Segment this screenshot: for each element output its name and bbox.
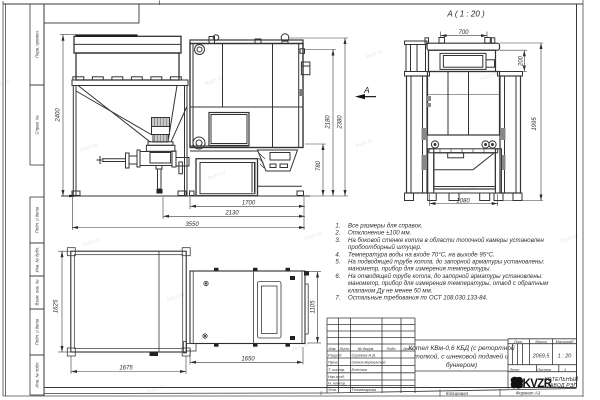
svg-text:1 : 20: 1 : 20	[558, 354, 573, 360]
svg-text:Формат А3: Формат А3	[516, 390, 541, 395]
svg-text:780: 780	[316, 160, 322, 171]
svg-text:Подп. и дата: Подп. и дата	[35, 318, 40, 345]
svg-text:Справ. №: Справ. №	[35, 115, 40, 134]
svg-text:1675: 1675	[119, 366, 133, 372]
svg-text:200: 200	[519, 55, 525, 67]
svg-text:Т. контр.: Т. контр.	[328, 367, 345, 372]
svg-text:Все размеры для справок.: Все размеры для справок.	[348, 223, 423, 230]
svg-text:На отводящей трубе котла, до з: На отводящей трубе котла, до запорной ар…	[348, 273, 543, 280]
svg-text:1: 1	[564, 368, 566, 372]
svg-text:1625: 1625	[54, 299, 60, 313]
svg-text:На подводящей трубе котла, до: На подводящей трубе котла, до запорной а…	[348, 259, 545, 266]
svg-text:Инв. № дубл.: Инв. № дубл.	[35, 247, 40, 273]
svg-text:ЗАВОД РЭП: ЗАВОД РЭП	[547, 383, 578, 389]
svg-text:манометр, прибор для измерения: манометр, прибор для измерения температу…	[348, 280, 549, 287]
svg-text:1700: 1700	[242, 201, 256, 207]
svg-text:3550: 3550	[185, 222, 199, 228]
svg-text:Взам. инв. №: Взам. инв. №	[35, 279, 40, 305]
svg-text:Остальные требования по ОСТ 10: Остальные требования по ОСТ 108.030.133-…	[348, 295, 488, 302]
svg-text:3.: 3.	[335, 237, 340, 244]
svg-text:Копировал: Копировал	[446, 391, 469, 396]
svg-text:Перв. примен.: Перв. примен.	[35, 30, 40, 58]
svg-text:6.: 6.	[335, 273, 340, 280]
svg-text:Масса: Масса	[535, 340, 546, 344]
svg-text:2130: 2130	[224, 211, 239, 217]
svg-text:бункером): бункером)	[446, 361, 477, 369]
svg-text:Температура воды на входе 70°С: Температура воды на входе 70°С, на выход…	[348, 251, 495, 258]
svg-text:Лист: Лист	[339, 347, 350, 351]
svg-text:Котел КВм-0,6 КБД (с ретортной: Котел КВм-0,6 КБД (с ретортной	[408, 344, 515, 352]
svg-text:Утв.: Утв.	[328, 387, 337, 392]
svg-text:КОТЕЛЬНЫЙ: КОТЕЛЬНЫЙ	[545, 375, 579, 383]
svg-text:Лист: Лист	[509, 368, 520, 372]
svg-text:Подп.: Подп.	[386, 347, 396, 351]
svg-text:1995: 1995	[532, 117, 538, 131]
svg-text:Нач.отд.: Нач.отд.	[328, 374, 345, 379]
svg-text:А: А	[363, 85, 370, 95]
svg-text:700: 700	[458, 30, 469, 36]
svg-text:1080: 1080	[456, 198, 470, 204]
svg-text:Есенчин: Есенчин	[352, 367, 368, 372]
svg-text:4.: 4.	[335, 251, 340, 258]
svg-text:2400: 2400	[56, 108, 62, 123]
svg-text:2380: 2380	[338, 115, 344, 130]
svg-text:2.: 2.	[334, 230, 340, 237]
svg-text:Отклонение ±100 мм.: Отклонение ±100 мм.	[348, 230, 411, 237]
svg-text:Сергеев А.В.: Сергеев А.В.	[352, 353, 376, 358]
svg-text:Лит.: Лит.	[513, 340, 523, 344]
svg-text:Инв. № подл.: Инв. № подл.	[35, 362, 40, 388]
svg-text:Пров.: Пров.	[328, 360, 339, 365]
svg-text:Олегов-Вережинский: Олегов-Вережинский	[352, 361, 386, 365]
svg-text:Н. контр.: Н. контр.	[328, 380, 346, 385]
svg-text:2180: 2180	[326, 115, 332, 130]
svg-text:А ( 1 : 20 ): А ( 1 : 20 )	[446, 10, 485, 19]
svg-text:Масштаб: Масштаб	[556, 340, 575, 344]
svg-text:Разраб.: Разраб.	[328, 353, 342, 358]
svg-text:7.: 7.	[335, 295, 340, 302]
svg-text:Толмачарова: Толмачарова	[352, 387, 377, 392]
svg-text:На боковой стенке котла в обла: На боковой стенке котла в области топочн…	[348, 237, 545, 244]
svg-text:1105: 1105	[311, 300, 317, 314]
svg-text:5.: 5.	[335, 259, 340, 266]
svg-text:Изм.: Изм.	[328, 347, 336, 351]
svg-text:1.: 1.	[335, 223, 340, 230]
svg-text:пробоотборный штуцер.: пробоотборный штуцер.	[348, 244, 422, 251]
svg-text:№ докум.: № докум.	[358, 347, 375, 351]
svg-text:1650: 1650	[241, 357, 255, 363]
svg-text:Подп. и дата: Подп. и дата	[35, 206, 40, 233]
svg-text:манометр, прибор для измерения: манометр, прибор для измерения температу…	[348, 266, 491, 273]
svg-text:2069,5: 2069,5	[532, 354, 551, 360]
svg-text:топкой, с шнековой подачей и: топкой, с шнековой подачей и	[414, 353, 509, 361]
svg-text:клапаном Ду не менее 50 мм.: клапаном Ду не менее 50 мм.	[348, 287, 432, 294]
svg-text:Листов: Листов	[536, 368, 551, 372]
